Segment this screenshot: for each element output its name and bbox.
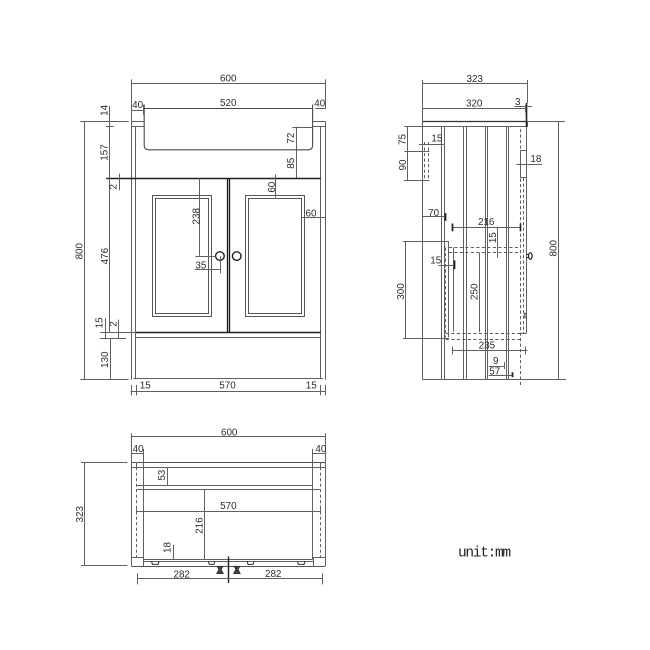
svg-text:53: 53	[157, 469, 168, 480]
svg-text:476: 476	[100, 247, 111, 264]
svg-text:600: 600	[220, 74, 237, 85]
svg-text:282: 282	[265, 569, 281, 580]
svg-text:2: 2	[108, 184, 119, 190]
svg-text:35: 35	[195, 260, 206, 271]
svg-text:14: 14	[99, 104, 110, 115]
svg-text:323: 323	[466, 74, 483, 85]
svg-text:40: 40	[315, 444, 326, 455]
svg-text:15: 15	[488, 232, 499, 243]
svg-text:323: 323	[75, 506, 86, 523]
svg-text:238: 238	[192, 208, 203, 225]
svg-text:320: 320	[466, 99, 483, 110]
svg-text:unit:mm: unit:mm	[458, 546, 510, 562]
svg-text:60: 60	[267, 181, 278, 192]
svg-text:300: 300	[396, 283, 407, 300]
svg-text:15: 15	[430, 255, 441, 266]
svg-text:18: 18	[163, 542, 174, 553]
svg-text:57: 57	[489, 367, 500, 378]
svg-text:15: 15	[306, 381, 317, 392]
svg-text:85: 85	[286, 157, 297, 168]
svg-text:72: 72	[286, 133, 297, 144]
svg-text:75: 75	[398, 134, 409, 145]
svg-text:3: 3	[515, 97, 521, 108]
svg-text:130: 130	[100, 351, 111, 368]
svg-text:60: 60	[306, 209, 317, 220]
svg-text:250: 250	[469, 283, 480, 300]
svg-text:282: 282	[173, 569, 189, 580]
svg-text:800: 800	[549, 240, 560, 257]
svg-text:90: 90	[398, 159, 409, 170]
svg-text:235: 235	[479, 341, 496, 352]
svg-text:40: 40	[314, 99, 325, 110]
svg-text:15: 15	[94, 317, 105, 328]
svg-text:520: 520	[220, 98, 237, 109]
svg-text:157: 157	[100, 144, 111, 160]
svg-text:216: 216	[194, 517, 205, 534]
svg-text:15: 15	[140, 381, 151, 392]
svg-text:2: 2	[108, 321, 119, 327]
svg-text:40: 40	[132, 100, 143, 111]
svg-text:800: 800	[75, 242, 86, 259]
svg-text:600: 600	[221, 427, 238, 438]
svg-text:216: 216	[478, 217, 495, 228]
svg-text:570: 570	[220, 501, 237, 512]
svg-text:40: 40	[133, 444, 144, 455]
svg-text:15: 15	[431, 134, 442, 145]
svg-text:18: 18	[530, 154, 541, 165]
svg-text:570: 570	[219, 381, 236, 392]
svg-text:70: 70	[428, 208, 439, 219]
